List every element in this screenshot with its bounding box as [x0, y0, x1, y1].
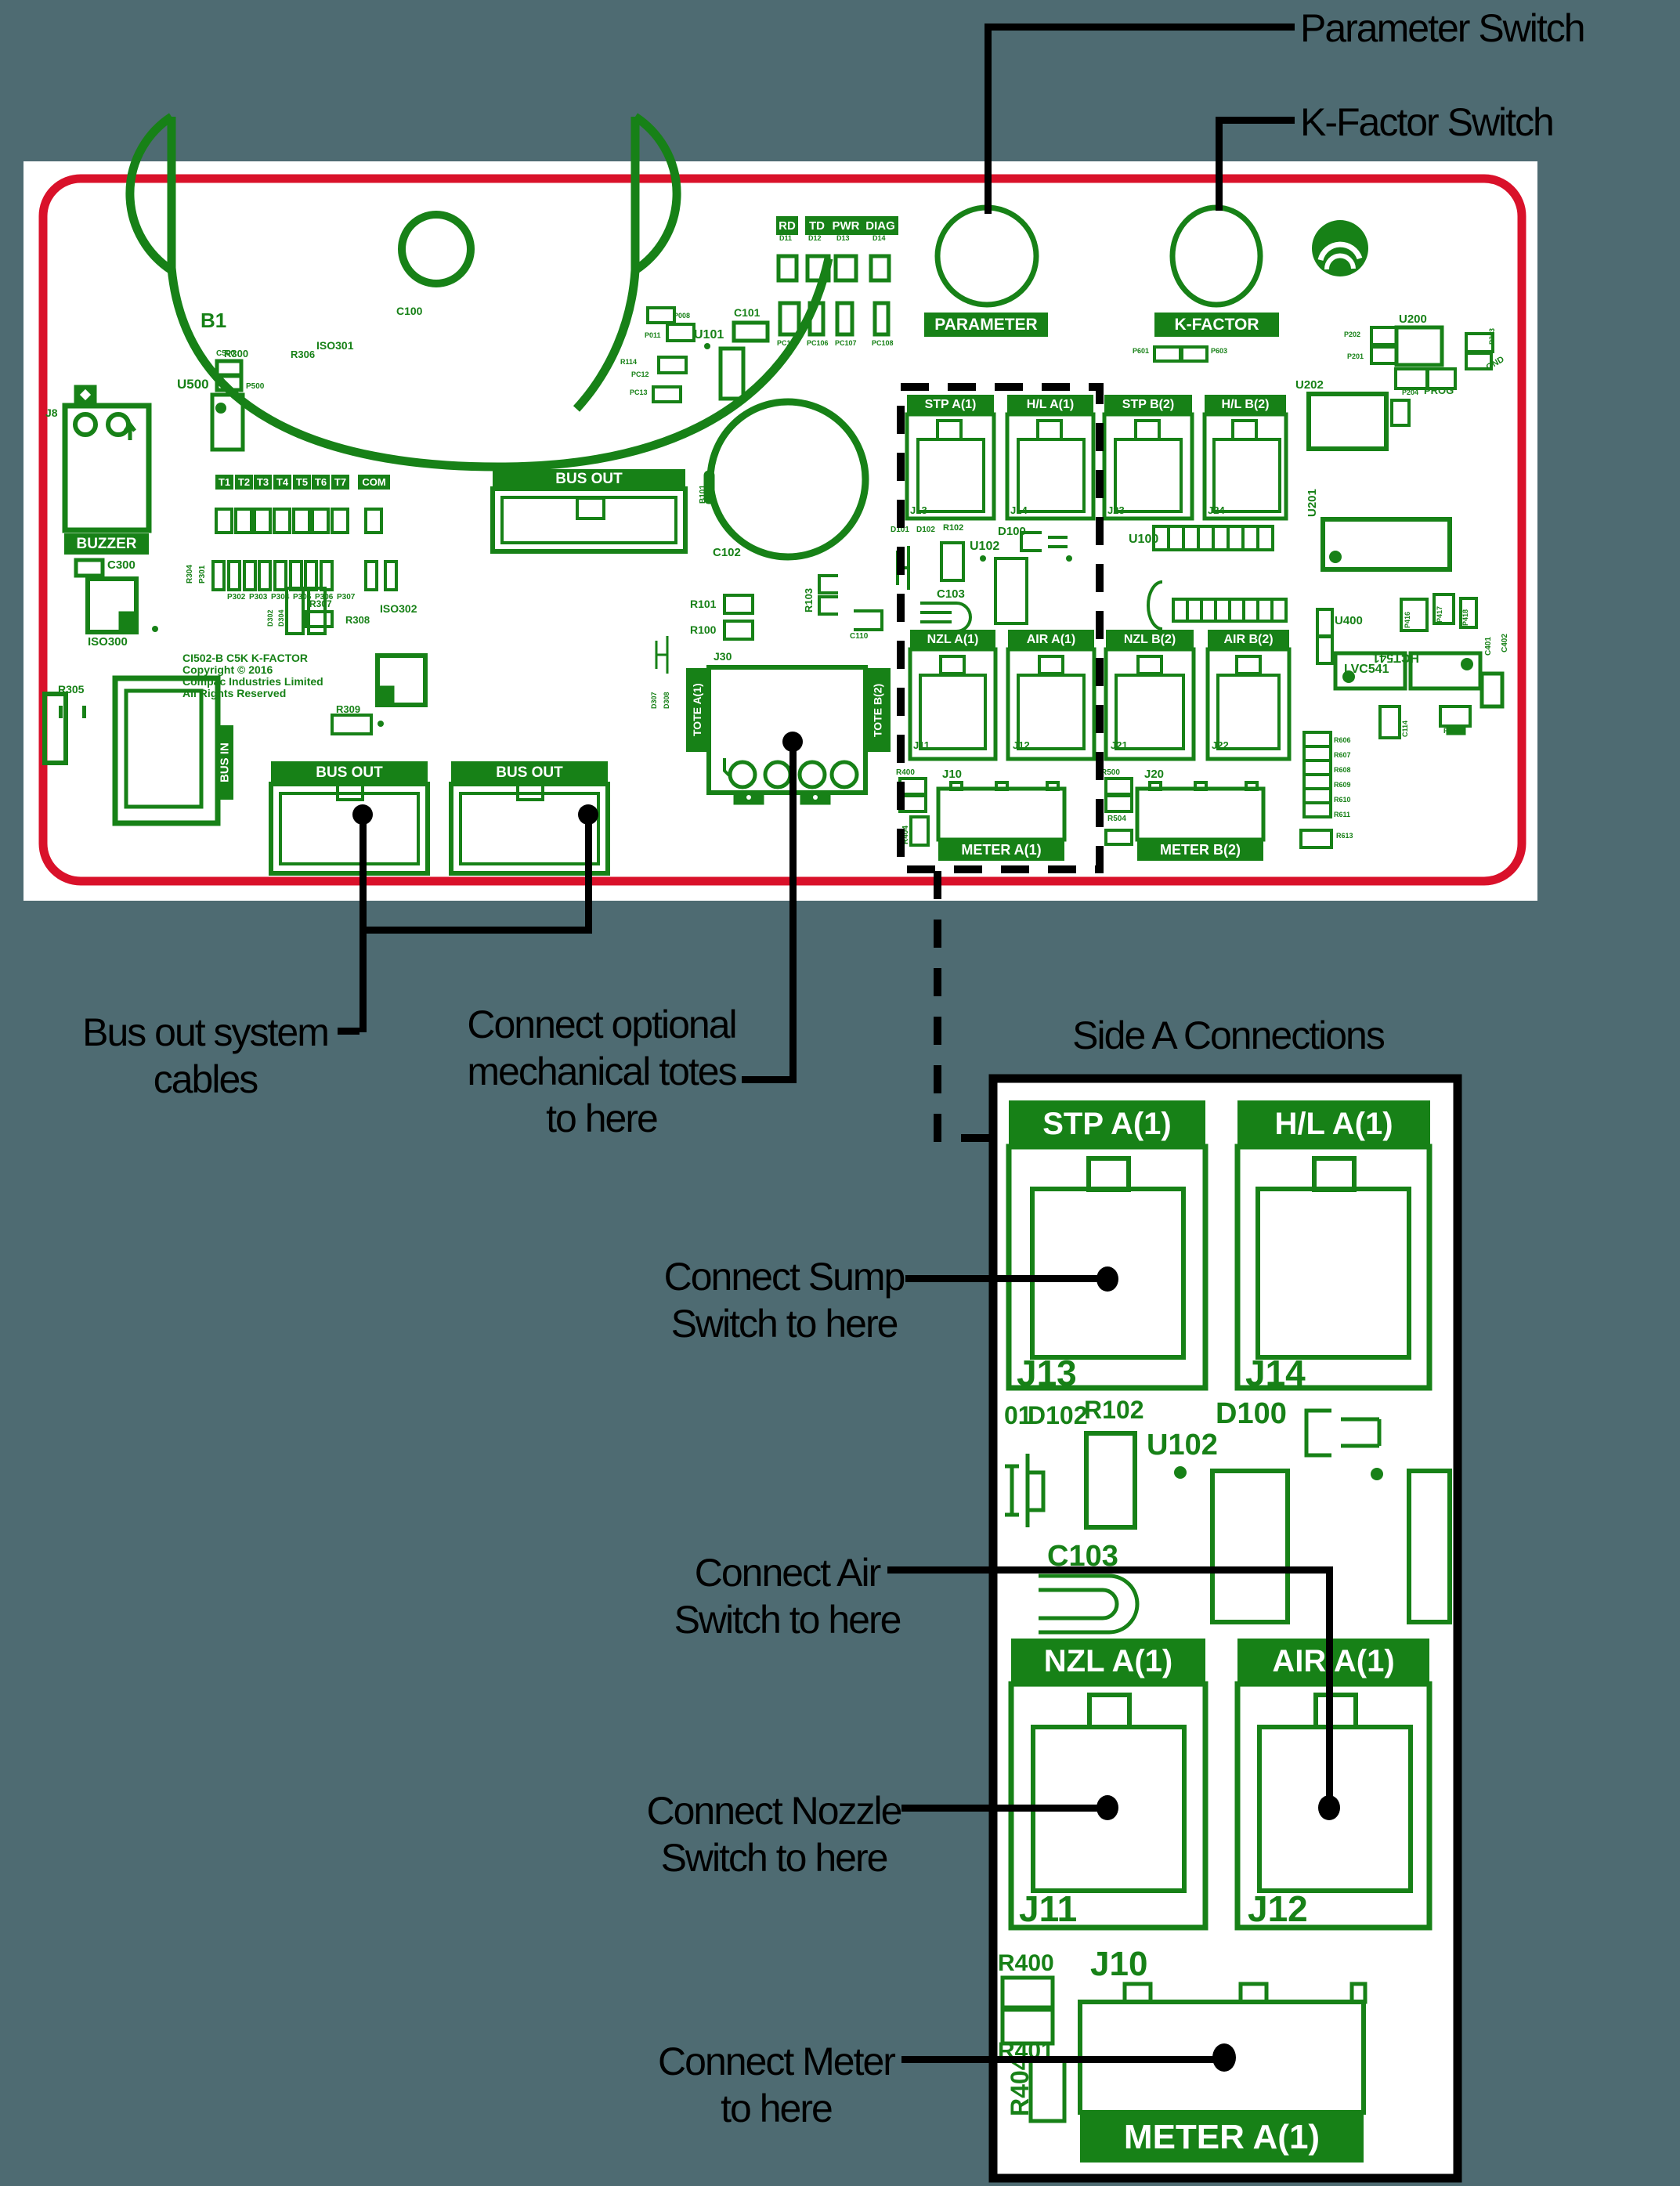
callout-text: Switch to here [630, 1596, 944, 1643]
title-text: Side A Connections [1071, 1012, 1385, 1059]
callout-text: K-Factor Switch [1300, 99, 1553, 146]
air-callout-line [887, 1566, 1333, 1574]
callout-text: Connect Meter [620, 2038, 933, 2085]
callout-text: to here [445, 1095, 758, 1142]
sump-switch-label: Connect Sump Switch to here [627, 1253, 941, 1347]
callout-text: Connect optional [445, 1001, 758, 1048]
callout-text: cables [49, 1056, 362, 1103]
callout-text: Connect Nozzle [617, 1787, 930, 1834]
parameter-callout-line [985, 23, 1295, 31]
side-a-dashed-highlight [901, 387, 1100, 869]
meter-callout-line [901, 2056, 1227, 2063]
meter-label: Connect Meter to here [620, 2038, 933, 2132]
callout-text: to here [620, 2085, 933, 2132]
callout-text: Bus out system [49, 1009, 362, 1056]
callout-text: Connect Sump [627, 1253, 941, 1300]
callout-text: Switch to here [627, 1300, 941, 1347]
callout-text: Connect Air [630, 1549, 944, 1596]
totes-callout-line [789, 742, 797, 1083]
air-switch-label: Connect Air Switch to here [630, 1549, 944, 1643]
callout-text: Parameter Switch [1300, 5, 1584, 52]
bus-out-cables-label: Bus out system cables [49, 1009, 362, 1103]
diagram-stage: PARAMETERK-FACTORBUZZERBUS OUTBUS OUTBUS… [0, 0, 1680, 2186]
callout-text: Switch to here [617, 1834, 930, 1881]
callout-text: mechanical totes [445, 1048, 758, 1095]
busout-callout-line [359, 815, 367, 1032]
nozzle-switch-label: Connect Nozzle Switch to here [617, 1787, 930, 1881]
kfactor-switch-label: K-Factor Switch [1300, 99, 1553, 146]
parameter-switch-label: Parameter Switch [1300, 5, 1584, 52]
mechanical-totes-label: Connect optional mechanical totes to her… [445, 1001, 758, 1142]
kfactor-callout-line [1216, 117, 1295, 124]
side-a-connections-title: Side A Connections [1071, 1012, 1385, 1059]
nozzle-callout-line [901, 1805, 1111, 1812]
